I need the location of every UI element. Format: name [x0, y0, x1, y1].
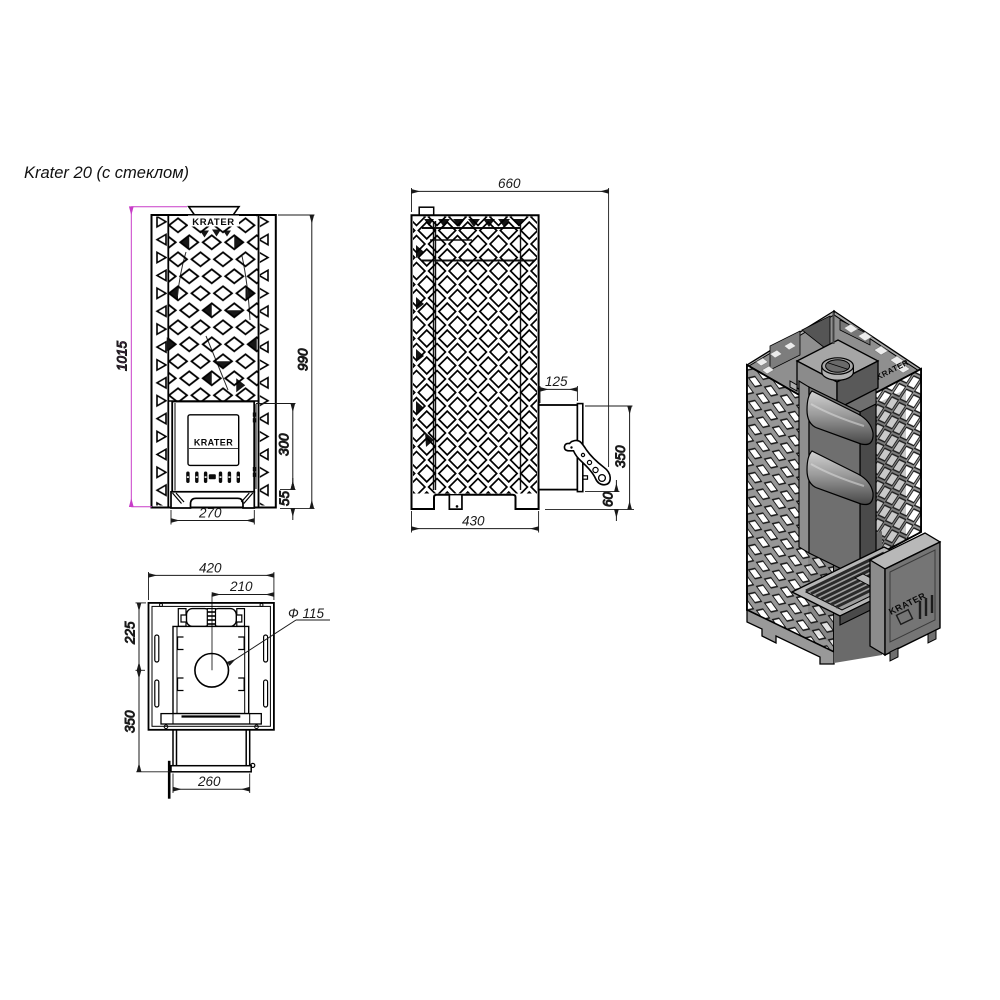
svg-text:Ф 115: Ф 115: [288, 606, 324, 621]
svg-text:270: 270: [198, 506, 222, 521]
svg-text:Krater 20 (с стеклом): Krater 20 (с стеклом): [24, 164, 189, 182]
svg-text:60: 60: [601, 491, 616, 507]
svg-text:225: 225: [123, 621, 138, 645]
svg-text:125: 125: [545, 374, 568, 389]
svg-text:55: 55: [277, 490, 292, 506]
svg-text:350: 350: [123, 710, 138, 733]
svg-text:990: 990: [296, 348, 311, 371]
svg-text:260: 260: [197, 774, 221, 789]
svg-text:300: 300: [277, 433, 292, 456]
svg-text:KRATER: KRATER: [192, 217, 234, 228]
svg-text:660: 660: [498, 176, 521, 191]
svg-text:430: 430: [462, 514, 485, 529]
svg-text:420: 420: [199, 561, 222, 576]
svg-text:KRATER: KRATER: [194, 438, 233, 448]
svg-text:350: 350: [613, 445, 628, 468]
svg-text:1015: 1015: [115, 340, 130, 371]
svg-text:210: 210: [229, 579, 253, 594]
